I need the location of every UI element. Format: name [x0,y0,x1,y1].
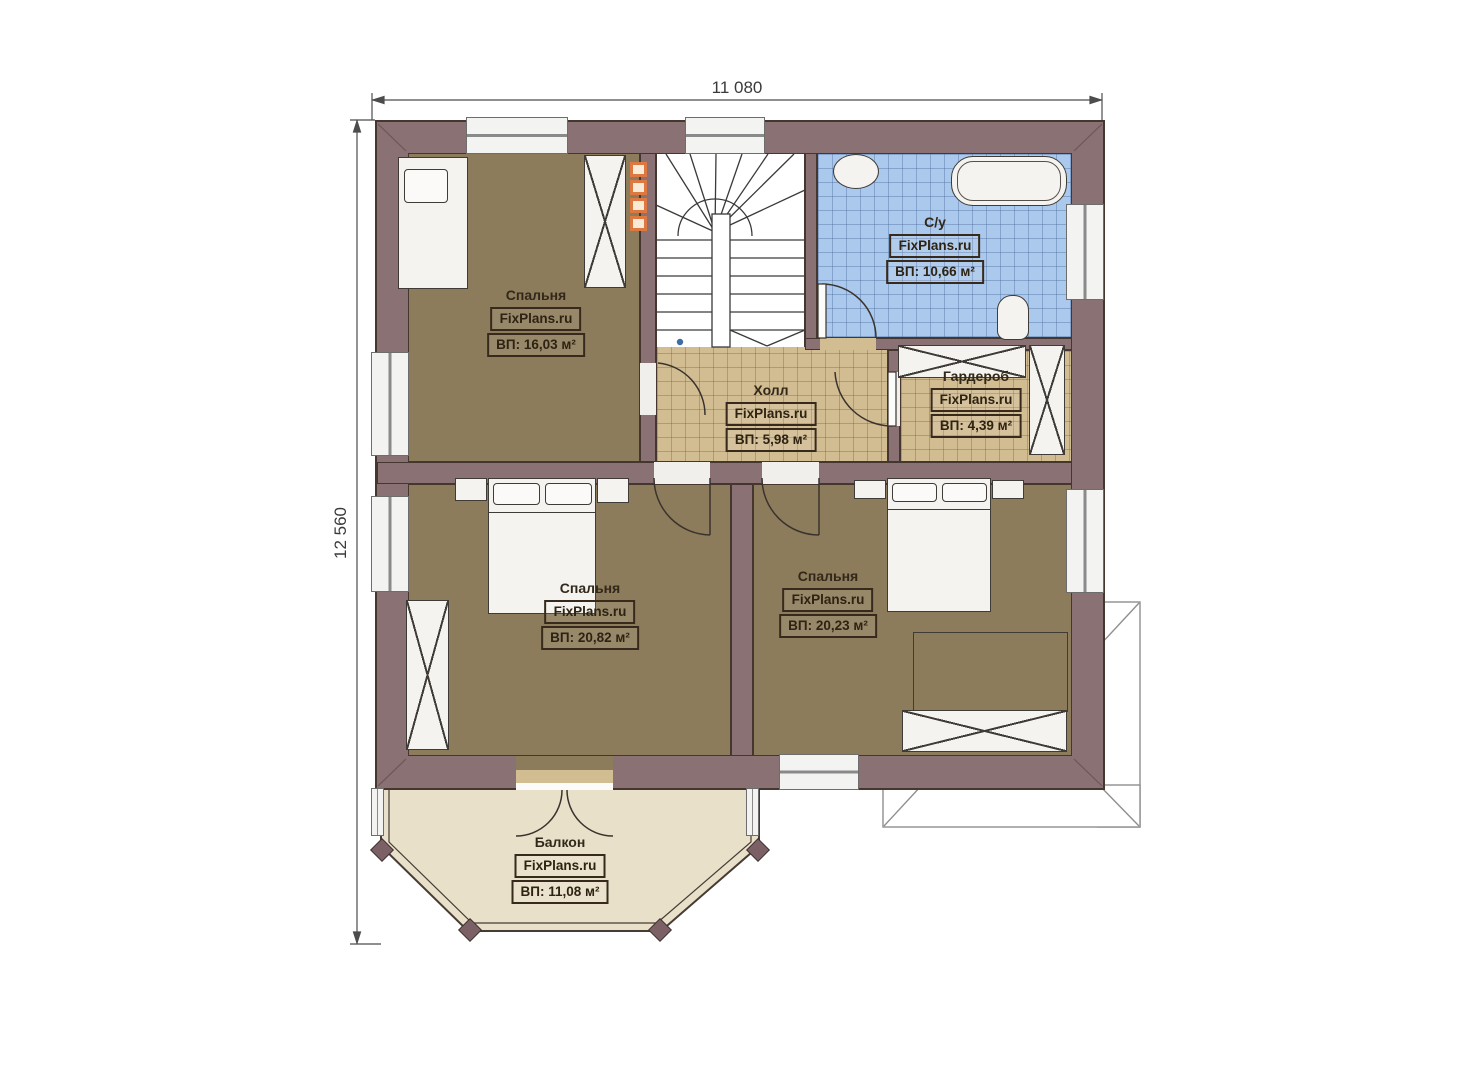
room-name: Балкон [535,834,586,850]
room-area: ВП: 11,08 м² [512,880,609,904]
watermark: FixPlans.ru [515,854,606,878]
stairs-icon [656,154,805,347]
room-area: ВП: 10,66 м² [886,260,984,284]
label-balcony: Балкон FixPlans.ru ВП: 11,08 м² [512,834,609,904]
room-name: Спальня [560,580,620,596]
label-hall: Холл FixPlans.ru ВП: 5,98 м² [726,382,817,452]
room-area: ВП: 5,98 м² [726,428,816,452]
watermark: FixPlans.ru [491,307,582,331]
dimension-width-label: 11 080 [712,78,763,98]
room-name: Спальня [506,287,566,303]
floor-plan-canvas: Спальня FixPlans.ru ВП: 16,03 м² С/у Fix… [0,0,1473,1080]
door-swing-arcs [516,284,896,836]
room-name: С/у [924,214,946,230]
label-bathroom: С/у FixPlans.ru ВП: 10,66 м² [886,214,984,284]
room-name: Холл [753,382,788,398]
room-name: Спальня [798,568,858,584]
watermark: FixPlans.ru [931,388,1022,412]
room-area: ВП: 4,39 м² [931,414,1021,438]
room-area: ВП: 20,82 м² [541,626,639,650]
linework-layer [0,0,1473,1080]
watermark: FixPlans.ru [545,600,636,624]
label-bedroom-top-left: Спальня FixPlans.ru ВП: 16,03 м² [487,287,585,357]
label-wardrobe: Гардероб FixPlans.ru ВП: 4,39 м² [931,368,1022,438]
room-area: ВП: 20,23 м² [779,614,877,638]
dimension-height-label: 12 560 [331,507,351,559]
watermark: FixPlans.ru [890,234,981,258]
room-name: Гардероб [943,368,1009,384]
watermark: FixPlans.ru [726,402,817,426]
label-bedroom-bottom-right: Спальня FixPlans.ru ВП: 20,23 м² [779,568,877,638]
label-bedroom-bottom-left: Спальня FixPlans.ru ВП: 20,82 м² [541,580,639,650]
wall-corner-hatch [378,124,1102,786]
room-area: ВП: 16,03 м² [487,333,585,357]
watermark: FixPlans.ru [783,588,874,612]
